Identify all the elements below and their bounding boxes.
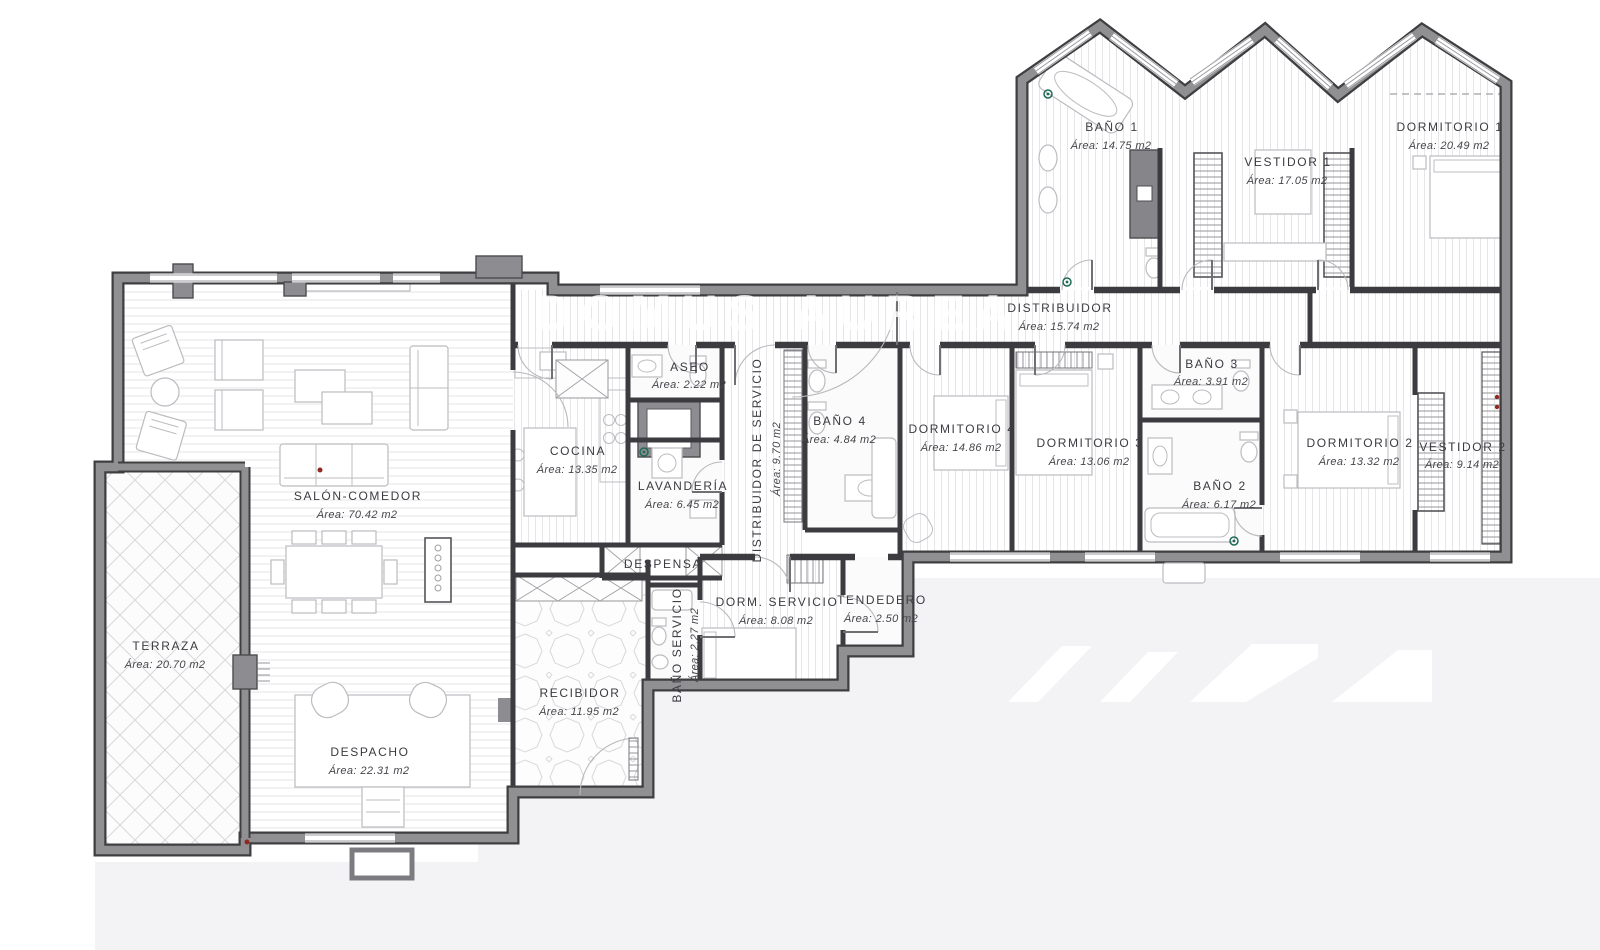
- wardrobe-vestidor1: [1324, 153, 1352, 277]
- room-label-banyo-servicio: BAÑO SERVICIO: [670, 587, 684, 702]
- dining-chair: [352, 600, 376, 613]
- toilet-icon: [1241, 442, 1257, 462]
- room-area-banyo1: Área: 14.75 m2: [1070, 139, 1152, 152]
- terrace-unit: [233, 655, 257, 689]
- room-label-terraza: TERRAZA: [132, 639, 199, 653]
- headboard-dormitorio3: [1016, 352, 1092, 368]
- desk-chair: [362, 787, 404, 827]
- room-label-dorm-servicio: DORM. SERVICIO: [716, 595, 839, 609]
- bed-dormitorio1: [1430, 156, 1506, 238]
- room-area-vestidor1: Área: 17.05 m2: [1246, 174, 1328, 187]
- coffee-table: [322, 392, 372, 424]
- toilet-tank: [808, 360, 826, 368]
- room-area-terraza: Área: 20.70 m2: [124, 658, 206, 671]
- dining-chair: [322, 600, 346, 613]
- room-area-cocina: Área: 13.35 m2: [536, 463, 618, 476]
- room-area-vestidor2: Área: 9.14 m2: [1424, 458, 1499, 471]
- shower-drain: [1137, 186, 1152, 201]
- room-area-salon-comedor: Área: 70.42 m2: [316, 508, 398, 521]
- room-label-banyo3: BAÑO 3: [1185, 357, 1239, 371]
- room-label-distribuidor: DISTRIBUIDOR: [1007, 301, 1112, 315]
- floor-plan-svg: TERRAZA Área: 20.70 m2 SALÓN-COMEDOR Áre…: [0, 0, 1600, 950]
- room-area-distribuidor-servicio: Área: 9.70 m2: [770, 422, 783, 497]
- toilet-icon: [652, 627, 666, 645]
- outdoor-bench: [1163, 563, 1205, 583]
- room-label-dormitorio3: DORMITORIO 3: [1037, 436, 1144, 450]
- nightstand: [1098, 354, 1113, 369]
- dining-chair: [292, 531, 316, 544]
- sideboard: [425, 538, 451, 602]
- sink-icon: [652, 655, 668, 669]
- room-label-recibidor: RECIBIDOR: [539, 686, 620, 700]
- dining-table: [286, 546, 382, 598]
- floor-recibidor-tiles: [513, 575, 648, 795]
- room-area-tendedero: Área: 2.50 m2: [843, 612, 918, 625]
- room-area-banyo4: Área: 4.84 m2: [801, 433, 876, 446]
- dining-chair: [271, 560, 284, 584]
- toilet-tank: [652, 618, 666, 626]
- duct-shaft: [784, 350, 802, 522]
- room-label-banyo2: BAÑO 2: [1193, 479, 1247, 493]
- room-label-vestidor2: VESTIDOR 2: [1419, 440, 1506, 454]
- washer-icon: [652, 448, 682, 478]
- dining-chair: [352, 531, 376, 544]
- wardrobe-vestidor1: [1194, 153, 1222, 277]
- floor-dorm1-strip: [1316, 290, 1506, 345]
- room-label-tendedero: TENDEDERO: [837, 593, 927, 607]
- room-area-dorm-servicio: Área: 8.08 m2: [738, 614, 813, 627]
- watermark-text: DOMUS AUREA: [535, 285, 1021, 341]
- aseo-sink-counter: [632, 355, 662, 377]
- room-label-salon-comedor: SALÓN-COMEDOR: [294, 488, 422, 503]
- room-area-lavanderia: Área: 6.45 m2: [644, 498, 719, 511]
- vestidor1-bench: [1224, 243, 1326, 261]
- toilet-tank: [1240, 432, 1258, 440]
- room-area-dormitorio2: Área: 13.32 m2: [1318, 455, 1400, 468]
- room-area-dormitorio3: Área: 13.06 m2: [1048, 455, 1130, 468]
- room-area-recibidor: Área: 11.95 m2: [538, 705, 619, 718]
- floor-plan-page: TERRAZA Área: 20.70 m2 SALÓN-COMEDOR Áre…: [0, 0, 1600, 950]
- dining-chair: [292, 600, 316, 613]
- room-label-dormitorio4: DORMITORIO 4: [909, 422, 1016, 436]
- sink-icon: [1039, 145, 1057, 171]
- wall-pier: [284, 282, 306, 296]
- room-label-dormitorio2: DORMITORIO 2: [1307, 436, 1414, 450]
- side-table: [151, 378, 179, 406]
- room-area-banyo-servicio: Área: 2.27 m2: [688, 608, 701, 683]
- terrace-grille: [258, 660, 270, 686]
- room-area-dormitorio4: Área: 14.86 m2: [920, 441, 1002, 454]
- room-area-aseo: Área: 2.22 m2: [651, 378, 726, 391]
- dining-chair: [384, 560, 397, 584]
- wall-niche: [498, 698, 512, 722]
- nightstand: [1413, 156, 1426, 169]
- bathtub-icon: [872, 438, 896, 518]
- nightstand: [1284, 410, 1297, 423]
- room-label-distribuidor-servicio: DISTRIBUIDOR DE SERVICIO: [750, 358, 764, 563]
- radiator-shelf: [300, 284, 410, 291]
- room-label-lavanderia: LAVANDERÍA: [638, 478, 728, 493]
- room-label-despacho: DESPACHO: [330, 745, 409, 759]
- room-label-cocina: COCINA: [550, 444, 606, 458]
- entry-door-leaf: [629, 738, 638, 780]
- room-area-distribuidor: Área: 15.74 m2: [1018, 320, 1100, 333]
- room-label-aseo: ASEO: [670, 360, 710, 374]
- bidet-tank: [808, 402, 826, 410]
- room-area-despacho: Área: 22.31 m2: [328, 764, 410, 777]
- room-label-dormitorio1: DORMITORIO 1: [1397, 120, 1504, 134]
- room-area-banyo3: Área: 3.91 m2: [1173, 375, 1248, 388]
- nightstand: [1284, 475, 1297, 488]
- room-label-banyo4: BAÑO 4: [813, 414, 867, 428]
- room-label-vestidor1: VESTIDOR 1: [1244, 155, 1331, 169]
- room-area-banyo2: Área: 6.17 m2: [1181, 498, 1256, 511]
- room-label-despensa: DESPENSA: [624, 557, 702, 571]
- dining-chair: [322, 531, 346, 544]
- room-label-banyo1: BAÑO 1: [1085, 120, 1139, 134]
- sink-icon: [1039, 187, 1057, 213]
- porch-block: [352, 850, 412, 878]
- sofa-three-seat: [280, 444, 388, 486]
- sink-counter: [1148, 438, 1172, 474]
- bed-dormitorio2: [1298, 412, 1400, 488]
- balcony-block: [476, 256, 522, 278]
- room-area-dormitorio1: Área: 20.49 m2: [1408, 139, 1490, 152]
- toilet-icon: [809, 370, 825, 392]
